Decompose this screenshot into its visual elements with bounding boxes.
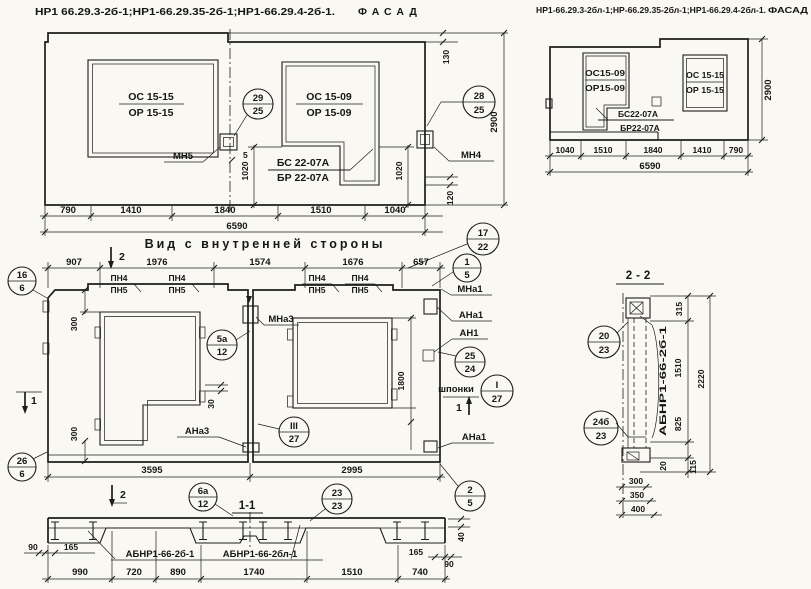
dim-r-1040: 1040 — [556, 145, 575, 155]
title-left-codes: НР1 66.29.3-2б-1;НР1-66.29.35-2б-1;НР1-6… — [35, 6, 335, 18]
svg-text:6: 6 — [19, 469, 24, 480]
svg-text:23: 23 — [596, 431, 607, 442]
svg-text:20: 20 — [599, 331, 610, 342]
svg-text:22: 22 — [478, 242, 489, 253]
dim-1020-right: 1020 — [394, 161, 404, 180]
dim-400: 400 — [631, 504, 645, 514]
dim-1800: 1800 — [396, 371, 406, 390]
svg-text:26: 26 — [17, 456, 28, 467]
dim-5: 5 — [243, 150, 248, 160]
dim-3595: 3595 — [141, 465, 163, 476]
svg-text:23: 23 — [599, 345, 610, 356]
dim-790: 790 — [60, 205, 76, 216]
svg-text:29: 29 — [253, 93, 264, 104]
facade-win2-bottom-label: ОР 15-09 — [307, 107, 352, 119]
dim-r-790: 790 — [729, 145, 743, 155]
svg-text:ПН4: ПН4 — [309, 273, 326, 283]
facade-win1-top-label: ОС 15-15 — [128, 91, 174, 103]
facade-beam-top-label: БС 22-07А — [277, 157, 330, 169]
mna3-label: МНа3 — [268, 314, 293, 325]
dim-6590: 6590 — [226, 221, 247, 232]
svg-text:III: III — [290, 421, 298, 432]
svg-text:12: 12 — [217, 347, 228, 358]
inner-side-view: Вид с внутренней стороны 2 907 1976 1574… — [8, 223, 513, 521]
dim-130: 130 — [441, 50, 451, 64]
ref-bubble-20-23: 20 23 — [588, 322, 628, 358]
svg-text:25: 25 — [474, 105, 485, 116]
ana3-label: АНа3 — [185, 426, 209, 437]
dim-300-top: 300 — [69, 317, 79, 331]
shponki-label: шпонки — [438, 384, 474, 395]
section-2-2-title: 2-2 — [626, 270, 655, 282]
svg-text:2: 2 — [467, 485, 472, 496]
dim-20: 20 — [658, 461, 668, 471]
section-1-1-title: 1-1 — [239, 500, 256, 512]
dim-825: 825 — [673, 417, 683, 431]
ref-bubble-25-24: 25 24 — [438, 347, 485, 377]
svg-text:28: 28 — [474, 91, 485, 102]
ref-bubble-III-27: III 27 — [258, 417, 309, 447]
inner-panel-right — [253, 285, 440, 462]
ana1-bottom-label: АНа1 — [462, 432, 487, 443]
ref-bubble-5a-12: 5а 12 — [207, 330, 250, 360]
dim-r-1840: 1840 — [644, 145, 663, 155]
section-profile — [48, 528, 445, 543]
dim-r-1410: 1410 — [693, 145, 712, 155]
svg-text:2: 2 — [119, 251, 125, 263]
section-1-1-view: АБНР1-66-2б-1 АБНР1-66-2бл-1 90 165 165 … — [24, 512, 470, 583]
ref-bubble-23-23: 23 23 — [310, 484, 352, 521]
dim-1510: 1510 — [310, 205, 331, 216]
svg-text:23: 23 — [332, 501, 343, 512]
facade-r-window2 — [683, 55, 727, 111]
section1-marker-left: 1 — [16, 392, 42, 414]
mn4-label: МН4 — [461, 150, 482, 161]
edge-anchor — [424, 299, 437, 314]
drawing-canvas: НР1 66.29.3-2б-1;НР1-66.29.35-2б-1;НР1-6… — [0, 0, 811, 589]
dim-115: 115 — [688, 460, 698, 474]
svg-text:5: 5 — [467, 498, 473, 509]
joint-anchor-bottom — [243, 443, 259, 452]
svg-text:ПН4: ПН4 — [352, 273, 369, 283]
assembly-label-right: АБНР1-66-2бл-1 — [223, 549, 298, 560]
mna1-label: МНа1 — [457, 284, 483, 295]
ref-bubble-24b-23: 24б 23 — [584, 411, 628, 445]
mn5-label: МН5 — [173, 151, 194, 162]
dim-350: 350 — [630, 490, 644, 500]
ref-bubble-2-5: 2 5 — [440, 464, 485, 511]
dim-120: 120 — [445, 191, 455, 205]
dim-r-1510: 1510 — [594, 145, 613, 155]
svg-text:5: 5 — [464, 270, 470, 281]
dim-1510-sec: 1510 — [341, 567, 362, 578]
dim-1510-sec22: 1510 — [673, 358, 683, 377]
inner-window-right — [293, 318, 392, 408]
facade-win1-bottom-label: ОР 15-15 — [129, 107, 174, 119]
facade-r-edge-anchor — [546, 99, 552, 108]
dim-r-6590: 6590 — [639, 161, 660, 172]
svg-text:25: 25 — [465, 351, 476, 362]
assembly-label-vertical: АБНР1-66-2б-1 — [658, 325, 669, 436]
ref-bubble-29-25: 29 25 — [234, 89, 273, 136]
facade-r-win1-top: ОС15-09 — [585, 68, 625, 78]
svg-text:1: 1 — [456, 402, 462, 414]
svg-text:1: 1 — [464, 257, 470, 268]
dim-2220: 2220 — [696, 369, 706, 388]
svg-text:2: 2 — [120, 489, 126, 501]
joint-arrow — [246, 296, 252, 303]
svg-text:6: 6 — [19, 283, 24, 294]
dim-315: 315 — [674, 302, 684, 316]
facade-r-beam-bot: БР22-07А — [620, 123, 660, 133]
facade-r-win2-top: ОС 15-15 — [686, 70, 724, 80]
facade-r-win2-bot: ОР 15-15 — [686, 85, 724, 95]
dim-300-sec22: 300 — [629, 476, 643, 486]
dim-30: 30 — [206, 399, 216, 409]
dim-1574: 1574 — [249, 257, 271, 268]
dim-40: 40 — [456, 532, 466, 542]
facade-r-win1-bot: ОР15-09 — [585, 83, 625, 93]
facade-outline — [45, 33, 425, 205]
facade-view: ОС 15-15 ОР 15-15 ОС 15-09 ОР 15-09 БС 2… — [40, 29, 508, 236]
svg-text:24б: 24б — [593, 417, 610, 428]
dim-300-bottom: 300 — [69, 427, 79, 441]
section1-marker-right: 1 — [443, 396, 479, 415]
facade-beam-bottom-label: БР 22-07А — [277, 172, 329, 184]
dim-165-left: 165 — [64, 542, 78, 552]
ref-bubble-1-5: 1 5 — [432, 254, 481, 286]
svg-text:27: 27 — [289, 434, 300, 445]
svg-text:I: I — [496, 380, 499, 391]
dim-890: 890 — [170, 567, 186, 578]
svg-text:ПН4: ПН4 — [169, 273, 186, 283]
top-anchor-block — [626, 298, 650, 318]
ref-bubble-16-6: 16 6 — [8, 267, 47, 298]
edge-anchor — [423, 350, 434, 361]
dim-1740: 1740 — [243, 567, 264, 578]
title-left-fasad: ФАСАД — [358, 6, 422, 18]
technical-drawing-sheet: НР1 66.29.3-2б-1;НР1-66.29.35-2б-1;НР1-6… — [0, 0, 811, 589]
facade-r-beam-top: БС22-07А — [618, 109, 658, 119]
ref-bubble-28-25: 28 25 — [427, 86, 495, 126]
dim-1410: 1410 — [120, 205, 141, 216]
facade-win2-top-label: ОС 15-09 — [306, 91, 352, 103]
dim-2995: 2995 — [341, 465, 363, 476]
ref-bubble-6a-12: 6а 12 — [189, 483, 233, 516]
svg-text:23: 23 — [332, 488, 343, 499]
section2-marker-bottom: 2 — [109, 485, 127, 507]
dim-1840: 1840 — [214, 205, 235, 216]
dim-90-right: 90 — [444, 559, 454, 569]
section-2-2-view: 2-2 АБНР1-66-2б-1 20 23 24б — [584, 270, 716, 520]
svg-text:24: 24 — [465, 364, 476, 375]
dim-1020-left: 1020 — [240, 161, 250, 180]
ref-bubble-I-27: I 27 — [481, 375, 513, 407]
svg-text:27: 27 — [492, 394, 503, 405]
svg-text:ПН4: ПН4 — [111, 273, 128, 283]
svg-text:ПН5: ПН5 — [111, 285, 128, 295]
joint-anchor-top — [243, 306, 258, 323]
ref-bubble-26-6: 26 6 — [8, 452, 47, 481]
dim-1676: 1676 — [342, 257, 363, 268]
svg-text:17: 17 — [478, 228, 489, 239]
embedded-channel-icons — [51, 522, 429, 541]
dim-90-left: 90 — [28, 542, 38, 552]
svg-text:16: 16 — [17, 270, 28, 281]
title-right-fasad: ФАСАД — [768, 5, 808, 15]
svg-text:6а: 6а — [198, 486, 209, 497]
sheet-titles: НР1 66.29.3-2б-1;НР1-66.29.35-2б-1;НР1-6… — [35, 5, 808, 18]
svg-text:ПН5: ПН5 — [169, 285, 186, 295]
svg-text:12: 12 — [198, 499, 209, 510]
an1-label: АН1 — [459, 328, 479, 339]
dim-r-2900: 2900 — [763, 79, 774, 100]
title-right-codes: НР1-66.29.3-2бл-1;НР-66.29.35-2бл-1;НР1-… — [536, 5, 766, 15]
dim-1976: 1976 — [146, 257, 167, 268]
svg-text:25: 25 — [253, 106, 264, 117]
facade-r-anchor — [652, 97, 661, 106]
mn5-anchor — [220, 134, 237, 150]
assembly-label-left: АБНР1-66-2б-1 — [126, 549, 195, 560]
svg-text:ПН5: ПН5 — [352, 285, 369, 295]
facade-mirrored-view: ОС15-09 ОР15-09 БС22-07А БР22-07А ОС 15-… — [545, 36, 774, 176]
dim-907: 907 — [66, 257, 82, 268]
dim-990: 990 — [72, 567, 88, 578]
ana1-label: АНа1 — [459, 310, 484, 321]
dim-740: 740 — [412, 567, 428, 578]
svg-text:ПН5: ПН5 — [309, 285, 326, 295]
svg-text:5а: 5а — [217, 334, 228, 345]
dim-1040: 1040 — [384, 205, 405, 216]
section2-marker-top: 2 — [108, 247, 125, 269]
dim-2900: 2900 — [489, 111, 500, 132]
edge-anchor — [424, 441, 437, 452]
dim-165-right: 165 — [409, 547, 423, 557]
dim-720: 720 — [126, 567, 142, 578]
inner-view-title: Вид с внутренней стороны — [145, 237, 386, 251]
svg-text:1: 1 — [31, 395, 37, 407]
